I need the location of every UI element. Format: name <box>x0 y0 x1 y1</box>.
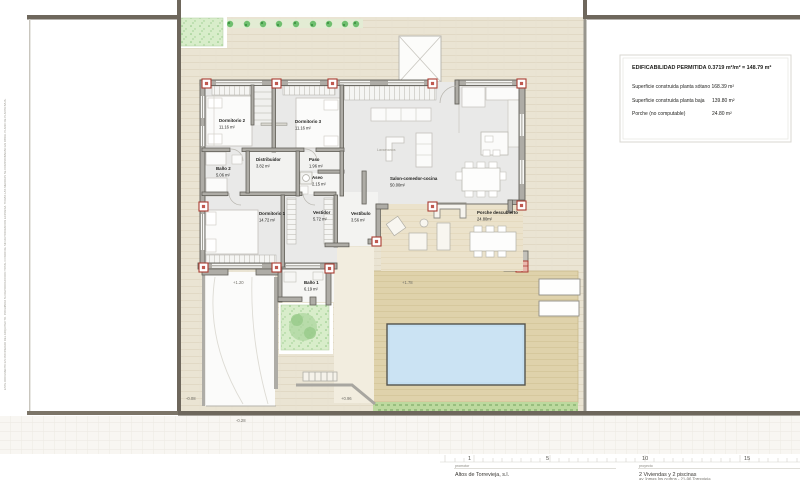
svg-text:Baño 2: Baño 2 <box>216 166 231 171</box>
svg-text:Dormitorio 2: Dormitorio 2 <box>219 118 246 123</box>
svg-text:1: 1 <box>468 456 471 462</box>
svg-text:ESTE DOCUMENTO ES PROPIEDAD DE: ESTE DOCUMENTO ES PROPIEDAD DEL ARQUITEC… <box>3 98 7 390</box>
svg-text:139.80 m²: 139.80 m² <box>712 98 735 104</box>
svg-text:-0.28: -0.28 <box>236 418 246 423</box>
svg-text:av. lomas los cedros - 21-96 T: av. lomas los cedros - 21-96 Torrevieja <box>639 477 711 480</box>
svg-text:Dormitorio 1: Dormitorio 1 <box>259 211 286 216</box>
svg-text:promotor: promotor <box>455 464 470 468</box>
svg-text:1.96 m²: 1.96 m² <box>309 164 324 169</box>
svg-text:Aseo: Aseo <box>312 175 323 180</box>
svg-text:5.06 m²: 5.06 m² <box>216 173 231 178</box>
svg-text:2.15 m²: 2.15 m² <box>312 182 327 187</box>
svg-text:EDIFICABILIDAD PERMITIDA 0.371: EDIFICABILIDAD PERMITIDA 0.3719 m²/m² = … <box>632 65 771 71</box>
svg-text:Distribuidor: Distribuidor <box>256 157 281 162</box>
svg-text:+1.20: +1.20 <box>233 280 244 285</box>
svg-text:24.80m²: 24.80m² <box>477 217 493 222</box>
svg-text:-0.08: -0.08 <box>186 396 196 401</box>
svg-text:Vestidor: Vestidor <box>313 210 331 215</box>
svg-text:Altos de Torrevieja, s.l.: Altos de Torrevieja, s.l. <box>455 472 509 478</box>
svg-text:Porche descubierto: Porche descubierto <box>477 210 518 215</box>
svg-text:3.82 m²: 3.82 m² <box>256 164 271 169</box>
svg-text:15: 15 <box>744 456 750 462</box>
svg-text:10: 10 <box>642 456 648 462</box>
svg-text:+0.96: +0.96 <box>341 396 352 401</box>
svg-text:Dormitorio 3: Dormitorio 3 <box>295 119 322 124</box>
svg-text:5.72 m²: 5.72 m² <box>313 217 328 222</box>
svg-text:Porche (no computable): Porche (no computable) <box>632 111 686 117</box>
svg-text:Baño 1: Baño 1 <box>304 280 319 285</box>
svg-text:6.19 m²: 6.19 m² <box>304 287 319 292</box>
svg-text:Salon-comedor-cocina: Salon-comedor-cocina <box>390 176 438 181</box>
svg-text:24.80 m²: 24.80 m² <box>712 111 732 117</box>
svg-text:11.16 m²: 11.16 m² <box>219 125 235 130</box>
svg-text:5: 5 <box>546 456 549 462</box>
svg-text:Superficie construida planta s: Superficie construida planta sótano 168.… <box>632 84 734 90</box>
svg-text:Lavamanos: Lavamanos <box>377 148 396 152</box>
svg-text:11.16 m²: 11.16 m² <box>295 126 311 131</box>
svg-text:+1.78: +1.78 <box>402 280 413 285</box>
svg-text:50.00m²: 50.00m² <box>390 183 406 188</box>
svg-text:3.56 m²: 3.56 m² <box>351 218 366 223</box>
svg-text:Paso: Paso <box>309 157 320 162</box>
svg-text:Superficie construida planta b: Superficie construida planta baja <box>632 98 705 104</box>
svg-text:Vestíbulo: Vestíbulo <box>351 211 371 216</box>
svg-text:14.72 m²: 14.72 m² <box>259 218 276 223</box>
svg-text:proyecto: proyecto <box>639 464 653 468</box>
